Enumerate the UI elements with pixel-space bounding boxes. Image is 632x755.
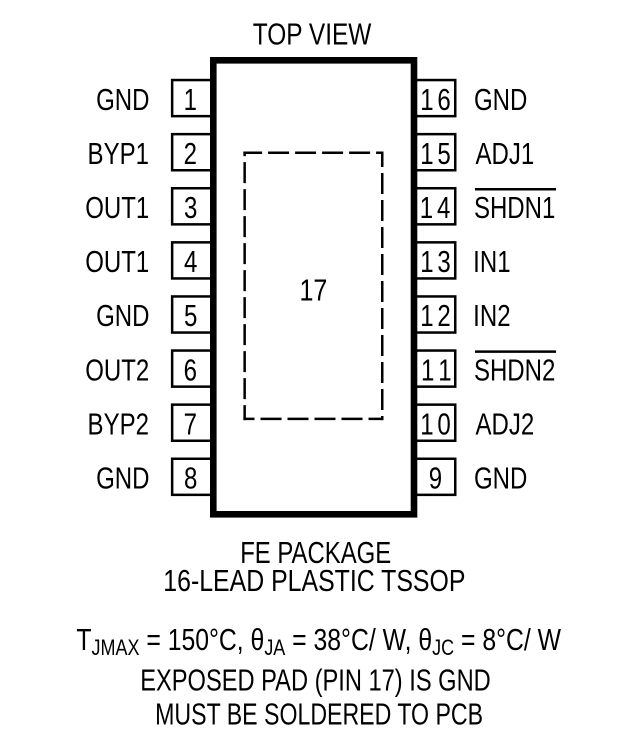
svg-text:EXPOSED PAD (PIN 17) IS GND: EXPOSED PAD (PIN 17) IS GND [140,662,491,697]
svg-text:IN2: IN2 [473,298,510,333]
svg-text:OUT1: OUT1 [85,244,149,279]
svg-text:17: 17 [299,273,327,307]
svg-text:GND: GND [96,461,149,496]
svg-text:GND: GND [96,298,149,333]
svg-text:2: 2 [184,136,197,171]
svg-text:4: 4 [184,244,197,279]
svg-text:16-LEAD PLASTIC TSSOP: 16-LEAD PLASTIC TSSOP [163,563,465,597]
svg-text:6: 6 [184,352,197,387]
svg-text:SHDN2: SHDN2 [474,352,555,387]
svg-text:9: 9 [429,461,442,496]
svg-text:ADJ2: ADJ2 [476,406,535,441]
svg-text:GND: GND [474,82,527,117]
svg-text:TOP VIEW: TOP VIEW [253,17,372,51]
svg-text:IN1: IN1 [473,244,510,279]
svg-text:1: 1 [184,82,197,117]
svg-text:TJMAX = 150°C, θJA = 38°C/ W,: TJMAX = 150°C, θJA = 38°C/ W, θJC = 8°C/… [76,622,561,660]
svg-text:GND: GND [474,461,527,496]
svg-text:BYP2: BYP2 [88,406,149,441]
svg-text:ADJ1: ADJ1 [476,136,535,171]
svg-text:5: 5 [184,298,197,333]
svg-text:BYP1: BYP1 [88,136,149,171]
svg-text:OUT2: OUT2 [85,352,149,387]
svg-text:7: 7 [184,406,197,441]
svg-text:3: 3 [184,190,197,225]
svg-text:8: 8 [184,461,197,496]
svg-text:GND: GND [96,82,149,117]
svg-text:MUST BE SOLDERED TO PCB: MUST BE SOLDERED TO PCB [155,696,483,731]
svg-text:SHDN1: SHDN1 [474,190,555,225]
svg-text:OUT1: OUT1 [85,190,149,225]
